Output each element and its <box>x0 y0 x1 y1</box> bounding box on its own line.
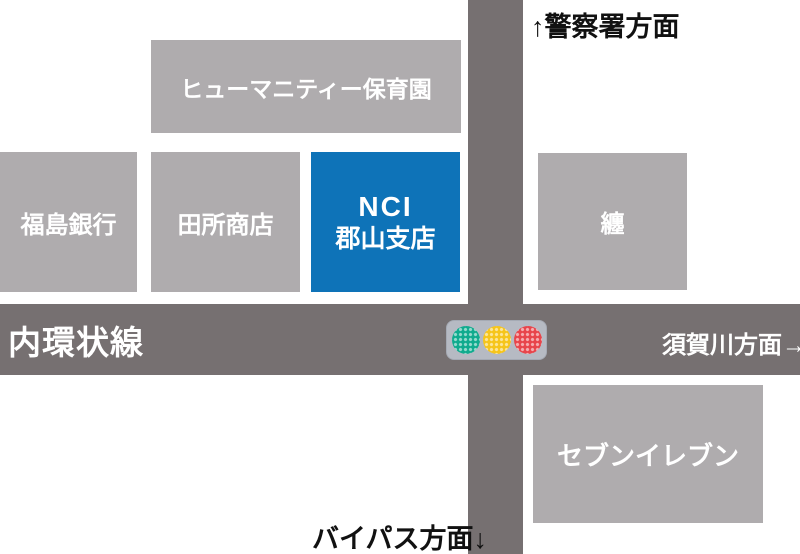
road-label: 内環状線 <box>8 304 144 375</box>
traffic-light-red-icon <box>514 326 542 354</box>
building-nursery: ヒューマニティー保育園 <box>151 40 461 133</box>
building-matoi: 纏 <box>538 153 687 290</box>
traffic-light-green-icon <box>452 326 480 354</box>
building-tadokoro-shoten: 田所商店 <box>151 152 300 292</box>
direction-police-station: ↑警察署方面 <box>531 5 680 44</box>
nci-label-line2: 郡山支店 <box>335 224 435 255</box>
access-map: 内環状線 ヒューマニティー保育園 福島銀行 田所商店 NCI 郡山支店 纏 セブ… <box>0 0 800 554</box>
building-nci-koriyama-branch: NCI 郡山支店 <box>311 152 460 292</box>
building-seven-eleven: セブンイレブン <box>533 385 763 523</box>
nci-label-line1: NCI <box>358 189 412 224</box>
building-matoi-label: 纏 <box>601 204 625 239</box>
building-fukushima-bank: 福島銀行 <box>0 152 137 292</box>
building-seven-eleven-label: セブンイレブン <box>557 436 739 473</box>
traffic-light <box>446 320 547 360</box>
vertical-road <box>468 0 523 554</box>
building-tadokoro-shoten-label: 田所商店 <box>178 205 274 240</box>
direction-sukagawa: 須賀川方面→ <box>662 325 800 360</box>
building-fukushima-bank-label: 福島銀行 <box>21 205 117 240</box>
building-nursery-label: ヒューマニティー保育園 <box>180 70 432 104</box>
traffic-light-yellow-icon <box>483 326 511 354</box>
direction-bypass: バイパス方面↓ <box>312 517 487 554</box>
